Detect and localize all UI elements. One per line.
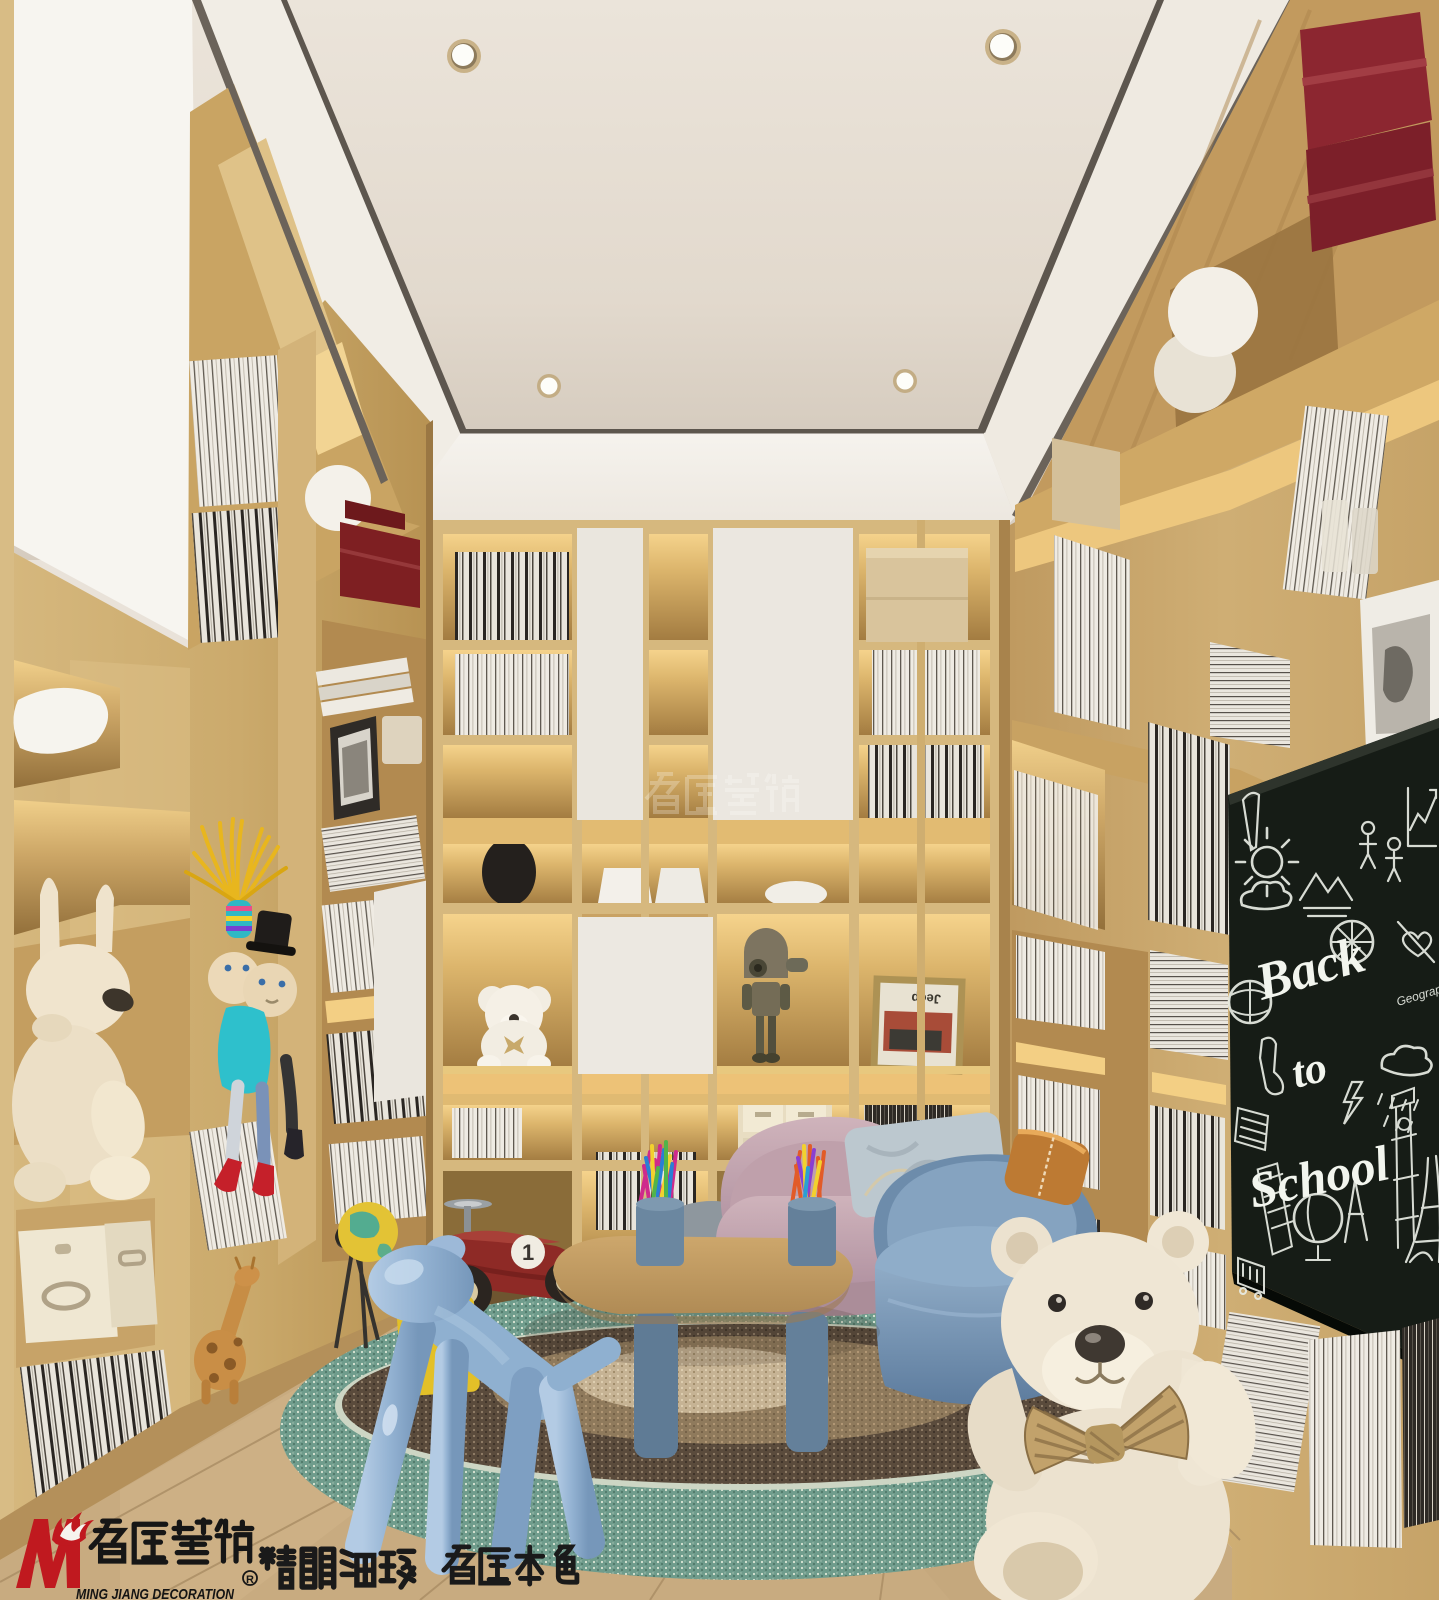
svg-text:1: 1 <box>522 1240 534 1265</box>
svg-text:Jeep: Jeep <box>911 991 941 1007</box>
svg-text:MING JIANG DECORATION: MING JIANG DECORATION <box>76 1586 235 1600</box>
svg-text:R: R <box>246 1574 254 1586</box>
